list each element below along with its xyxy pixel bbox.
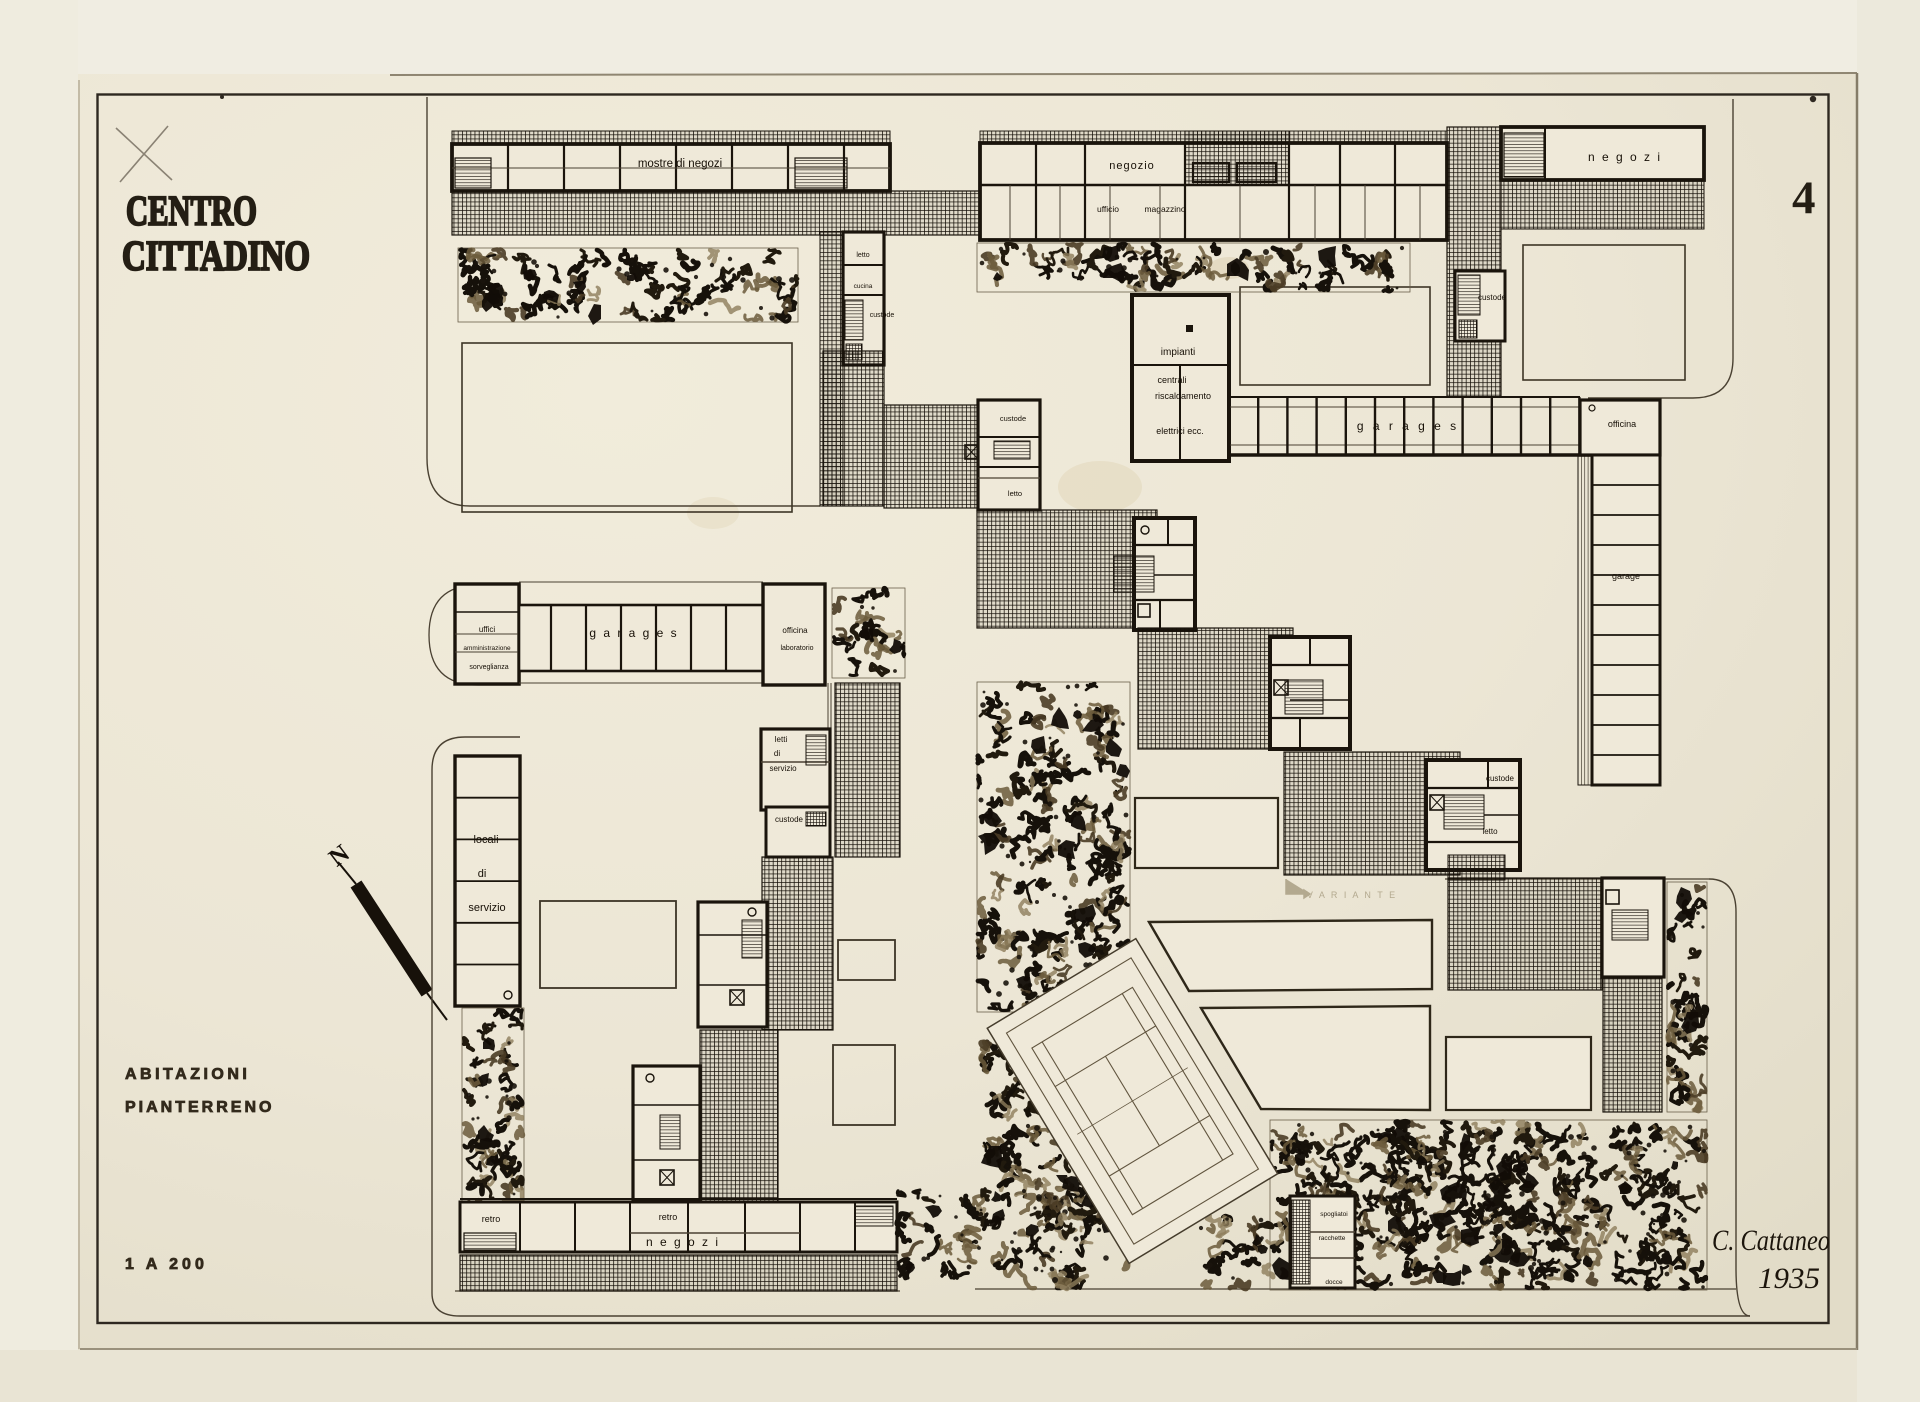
svg-text:custode: custode — [1478, 293, 1507, 302]
svg-text:mostre di negozi: mostre di negozi — [638, 158, 722, 170]
svg-text:retro: retro — [482, 1214, 501, 1224]
svg-text:di: di — [774, 749, 780, 758]
svg-text:servizio: servizio — [468, 902, 505, 914]
svg-text:letto: letto — [1482, 827, 1498, 836]
svg-text:CITTADINO: CITTADINO — [122, 234, 310, 280]
svg-text:CENTRO: CENTRO — [126, 189, 257, 235]
svg-text:cucina: cucina — [854, 283, 873, 290]
svg-text:ufficio: ufficio — [1097, 204, 1119, 214]
svg-text:custode: custode — [1000, 414, 1026, 423]
svg-text:impianti: impianti — [1161, 347, 1195, 358]
svg-text:sorveglianza: sorveglianza — [469, 664, 508, 671]
svg-text:V A R I A N T E: V A R I A N T E — [1307, 890, 1397, 900]
svg-text:officina: officina — [1608, 419, 1636, 429]
svg-text:laboratorio: laboratorio — [780, 645, 813, 652]
svg-text:g a r a g e s: g a r a g e s — [1357, 419, 1459, 433]
svg-text:uffici: uffici — [479, 625, 496, 634]
svg-text:officina: officina — [782, 626, 808, 635]
svg-text:magazzino: magazzino — [1144, 204, 1185, 214]
svg-text:servizio: servizio — [769, 764, 797, 773]
svg-text:1 A 200: 1 A 200 — [125, 1256, 208, 1273]
svg-text:n e g o z i: n e g o z i — [646, 1235, 720, 1249]
svg-text:locali: locali — [473, 834, 498, 846]
svg-text:custode: custode — [1486, 774, 1515, 783]
svg-text:C. Cattaneo: C. Cattaneo — [1712, 1224, 1830, 1257]
svg-text:letto: letto — [1008, 489, 1022, 498]
svg-text:letti: letti — [775, 735, 788, 744]
svg-text:docce: docce — [1325, 1279, 1343, 1286]
svg-text:di: di — [478, 868, 487, 880]
svg-text:g a r a g e s: g a r a g e s — [589, 626, 678, 640]
svg-text:custode: custode — [870, 312, 895, 319]
svg-text:negozio: negozio — [1109, 160, 1155, 172]
svg-text:1935: 1935 — [1758, 1262, 1820, 1295]
svg-text:elettrici ecc.: elettrici ecc. — [1156, 426, 1204, 436]
svg-text:centrali: centrali — [1157, 375, 1186, 385]
svg-text:ABITAZIONI: ABITAZIONI — [125, 1066, 250, 1083]
svg-text:spogliatoi: spogliatoi — [1320, 1211, 1347, 1218]
svg-text:letto: letto — [856, 252, 869, 259]
svg-text:PIANTERRENO: PIANTERRENO — [125, 1099, 274, 1116]
svg-text:racchette: racchette — [1319, 1235, 1346, 1242]
svg-text:retro: retro — [659, 1212, 678, 1222]
svg-text:custode: custode — [775, 815, 804, 824]
svg-text:riscaldamento: riscaldamento — [1155, 391, 1211, 401]
svg-text:amministrazione: amministrazione — [463, 645, 511, 652]
svg-text:4: 4 — [1792, 172, 1816, 224]
svg-text:n e g o z i: n e g o z i — [1588, 150, 1662, 164]
svg-text:garage: garage — [1612, 571, 1640, 581]
